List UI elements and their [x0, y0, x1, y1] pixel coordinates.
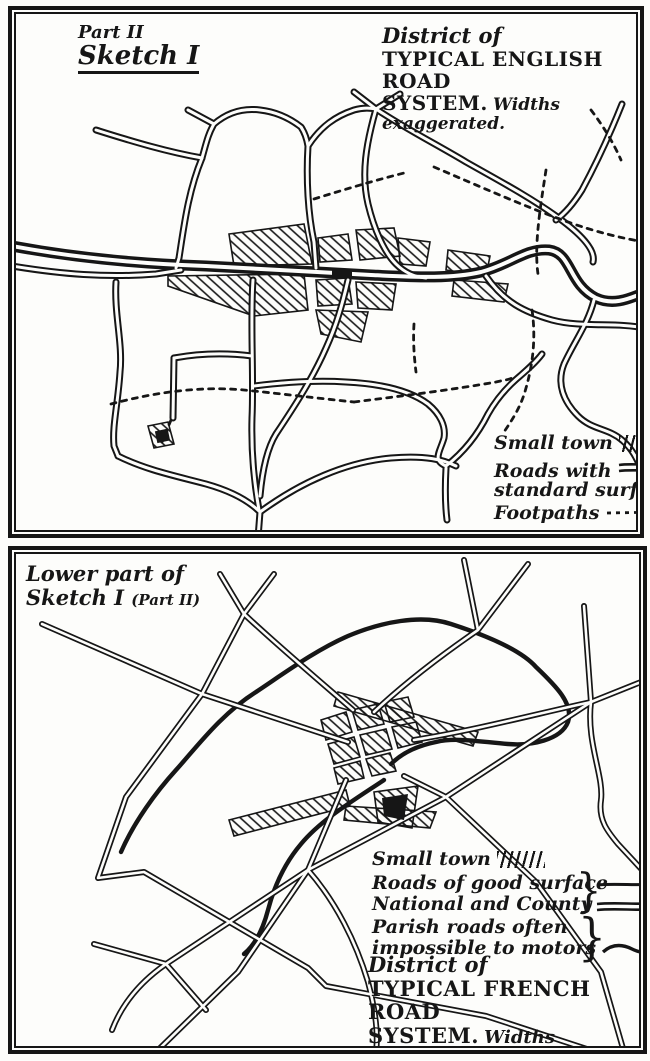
- legend-item-footpaths: Footpaths: [494, 504, 638, 523]
- legend-item-roads: Roads with: [494, 461, 638, 481]
- sketch-label-block: Part II Sketch I: [78, 24, 199, 74]
- dotted-line-swatch: [606, 507, 638, 517]
- legend-item-small-town: Small town: [494, 434, 638, 453]
- english-map-panel: Part II Sketch I District of TYPICAL ENG…: [8, 6, 644, 538]
- french-caption-paren: (Part II): [131, 591, 200, 609]
- english-title-prefix: District of: [382, 24, 636, 48]
- english-legend: Small town Roads with standard surface F…: [494, 434, 638, 526]
- french-title-line1: TYPICAL FRENCH ROAD: [368, 977, 639, 1024]
- sketch-title: Sketch I: [78, 43, 199, 74]
- double-line-swatch: [618, 461, 638, 475]
- english-title-block: District of TYPICAL ENGLISH ROAD SYSTEM.…: [382, 24, 636, 134]
- french-caption-line1: Lower part of: [26, 562, 200, 586]
- french-title-prefix: District of: [368, 953, 639, 977]
- french-title-line2: SYSTEM.: [368, 1023, 479, 1048]
- french-title-block: District of TYPICAL FRENCH ROAD SYSTEM. …: [368, 953, 639, 1048]
- french-town-ink-blocks: [382, 794, 408, 820]
- single-line-swatch: [596, 880, 641, 890]
- small-town-hatch-swatch: [619, 435, 638, 452]
- english-map-frame: Part II Sketch I District of TYPICAL ENG…: [14, 12, 638, 532]
- french-map-frame: Lower part of Sketch I (Part II) Small t…: [14, 552, 641, 1048]
- french-legend: Small town Roads of good surface Nationa…: [372, 850, 640, 966]
- french-map-panel: Lower part of Sketch I (Part II) Small t…: [8, 546, 647, 1054]
- small-town-hatch-swatch-fr: [497, 851, 545, 868]
- legend-item-roads-line2: standard surface: [494, 481, 638, 500]
- french-caption-line2: Sketch I: [26, 585, 124, 610]
- english-title-line1: TYPICAL ENGLISH ROAD: [382, 48, 636, 93]
- french-caption-block: Lower part of Sketch I (Part II): [26, 562, 200, 610]
- book-plate-page: Part II Sketch I District of TYPICAL ENG…: [0, 0, 650, 1061]
- legend-item-small-town-fr: Small town: [372, 850, 545, 869]
- english-title-line2: SYSTEM.: [382, 91, 488, 115]
